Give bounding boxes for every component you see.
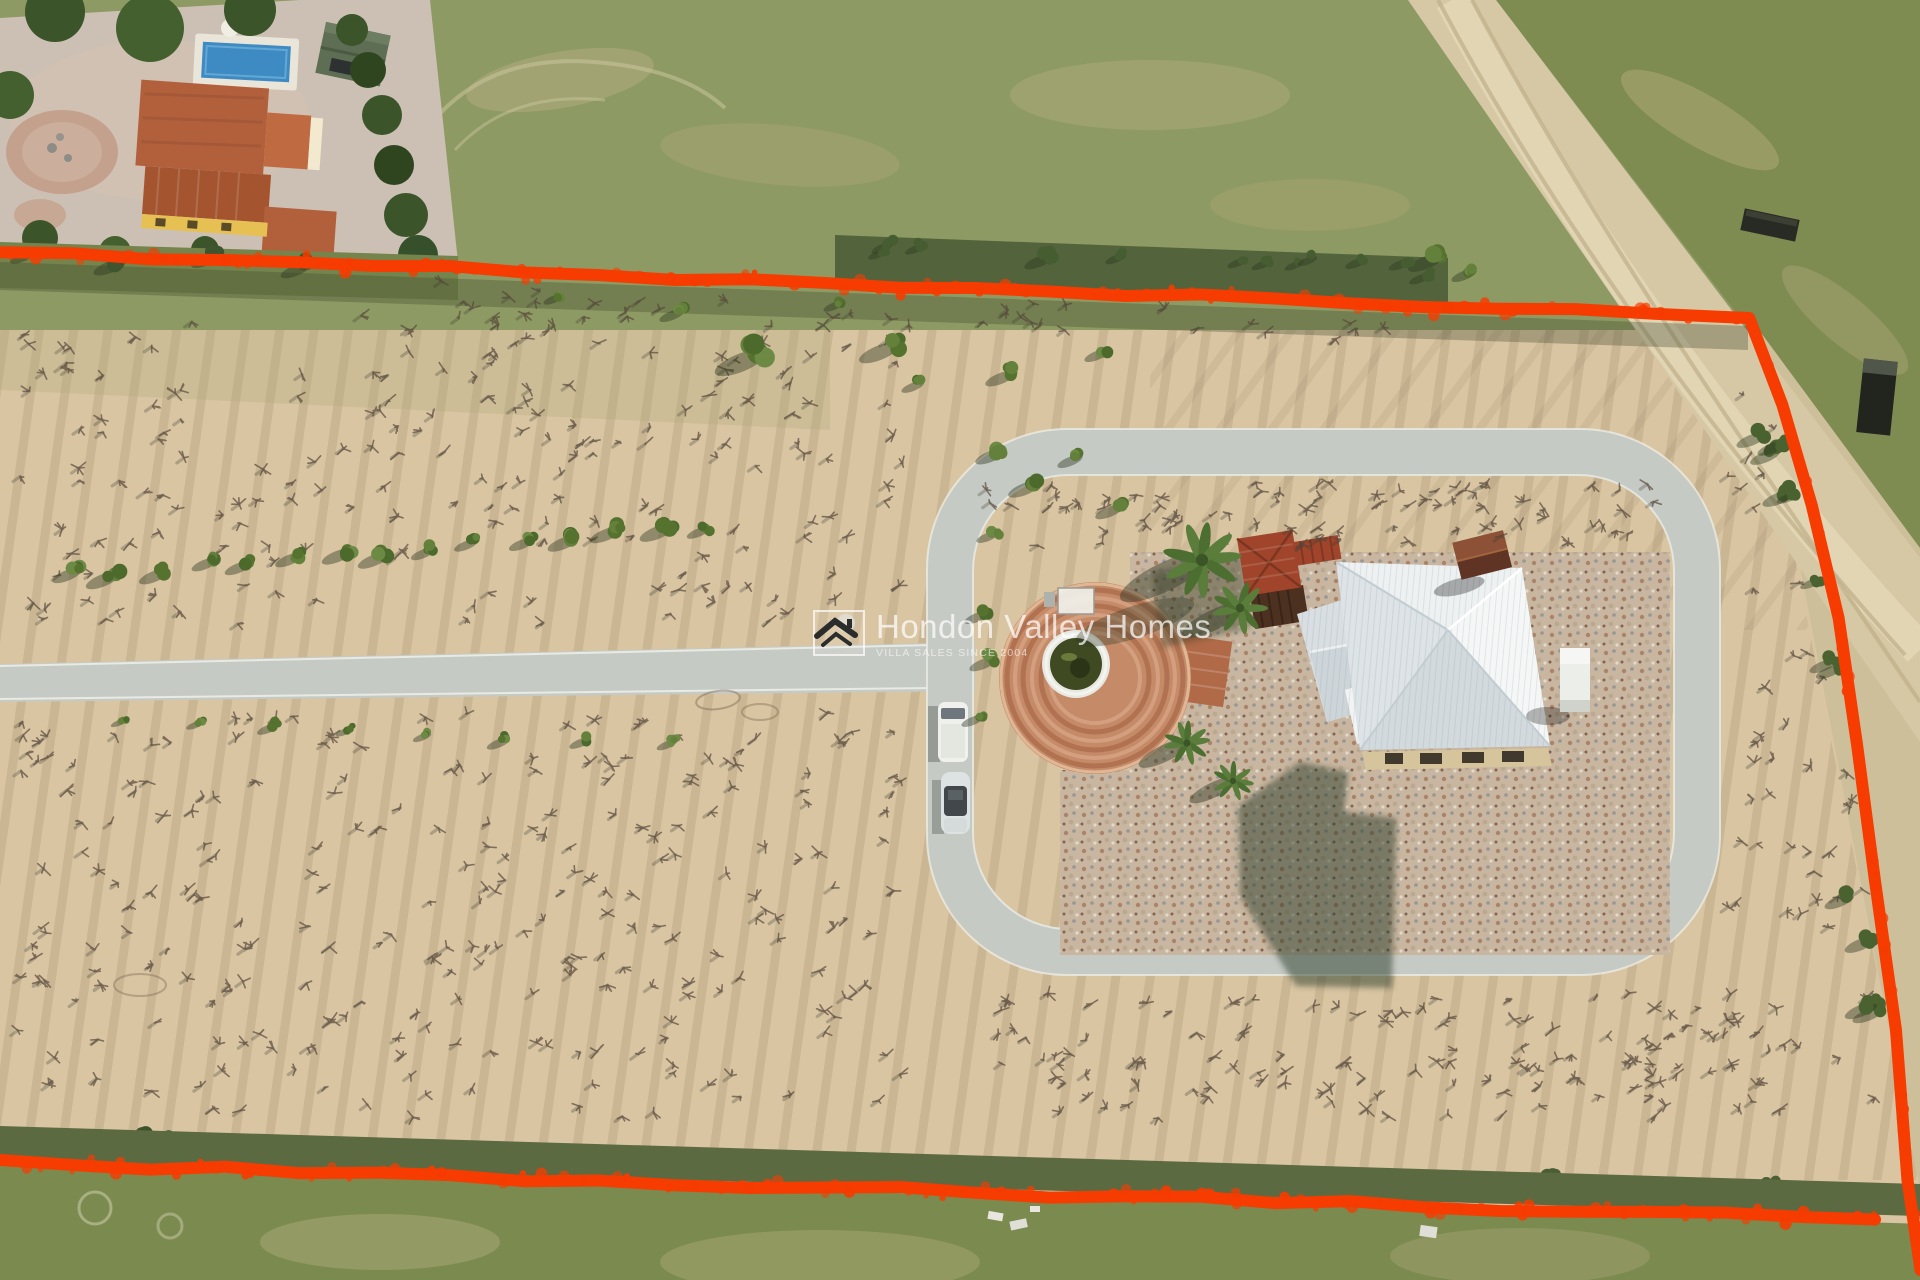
fountain-water-dark bbox=[1070, 658, 1090, 678]
window bbox=[155, 218, 166, 227]
white-debris bbox=[1419, 1225, 1437, 1238]
circular-garden-bed-inner bbox=[22, 122, 102, 182]
aerial-photo-canvas bbox=[0, 0, 1920, 1280]
terracotta-roof-lower bbox=[262, 207, 337, 256]
field-patch bbox=[1210, 179, 1410, 231]
garden-stone bbox=[64, 154, 72, 162]
white-van bbox=[928, 702, 968, 762]
villa-window bbox=[1462, 752, 1484, 763]
field-patch bbox=[1010, 60, 1290, 130]
car-hood bbox=[944, 818, 967, 832]
aerial-photo: Hondon Valley Homes VILLA SALES SINCE 20… bbox=[0, 0, 1920, 1280]
garden-stone bbox=[56, 133, 64, 141]
villa-window bbox=[1502, 751, 1524, 762]
garden-stone bbox=[47, 143, 57, 153]
villa-chimney-shade bbox=[1560, 700, 1590, 712]
swimming-pool bbox=[193, 33, 300, 90]
window bbox=[187, 220, 198, 229]
window bbox=[221, 223, 232, 232]
terracotta-roof-wing bbox=[264, 112, 312, 169]
car-sunroof bbox=[948, 790, 963, 800]
villa-window bbox=[1420, 753, 1442, 764]
white-car bbox=[932, 772, 970, 834]
fountain-glint bbox=[1061, 653, 1077, 661]
white-pergola-frame bbox=[1058, 588, 1094, 614]
villa-window bbox=[1385, 753, 1403, 764]
terracotta-roof-gabled bbox=[142, 166, 271, 223]
van-windshield bbox=[941, 708, 965, 719]
van-roof bbox=[941, 724, 965, 758]
white-debris bbox=[1030, 1206, 1040, 1212]
utility-box bbox=[1044, 592, 1055, 607]
villa-chimney-top bbox=[1560, 648, 1590, 664]
